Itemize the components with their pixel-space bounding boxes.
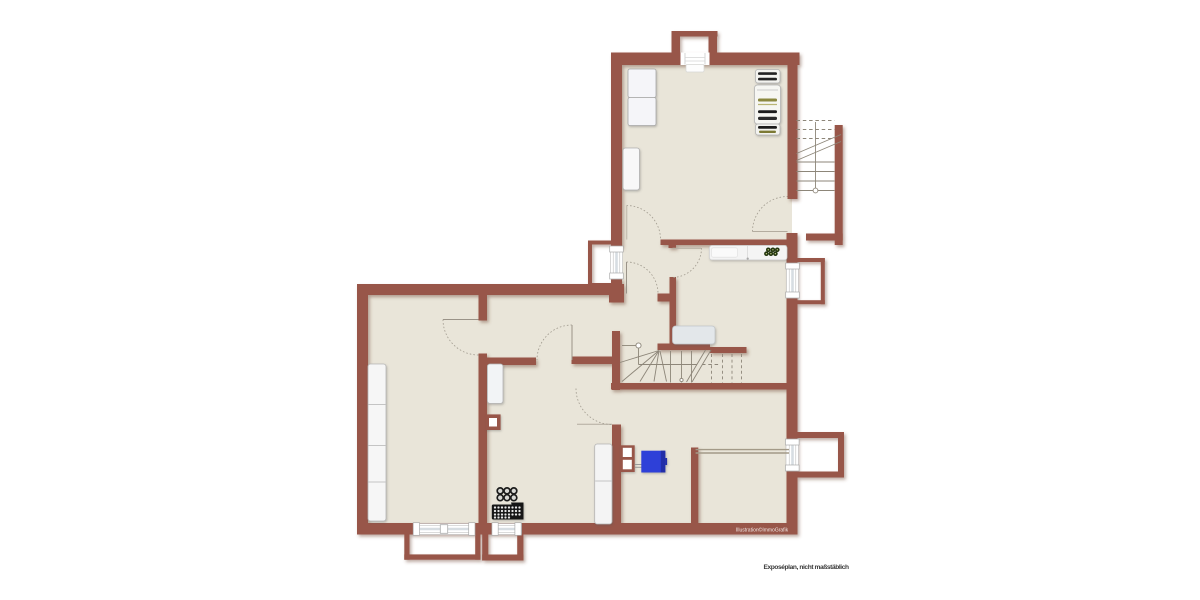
svg-text:Exposéplan, nicht maßstäblich: Exposéplan, nicht maßstäblich xyxy=(764,564,850,571)
svg-text:Illustration©ImmoGrafik: Illustration©ImmoGrafik xyxy=(736,527,789,534)
